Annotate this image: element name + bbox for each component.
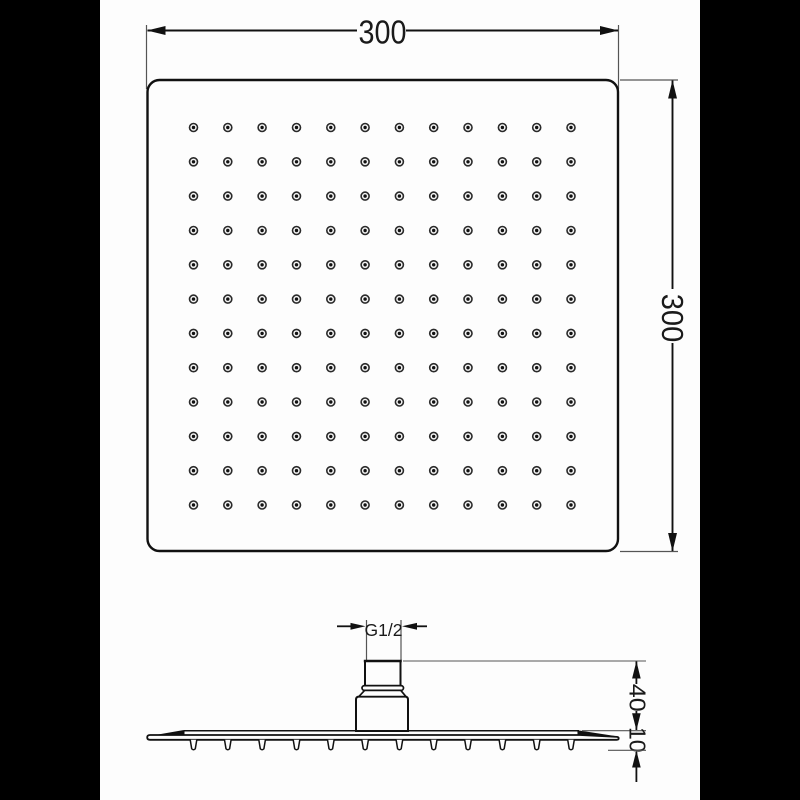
svg-text:10: 10 (625, 727, 651, 753)
svg-text:300: 300 (655, 294, 690, 343)
svg-text:G1/2: G1/2 (365, 620, 403, 640)
svg-text:300: 300 (359, 13, 407, 50)
svg-text:40: 40 (624, 684, 650, 712)
